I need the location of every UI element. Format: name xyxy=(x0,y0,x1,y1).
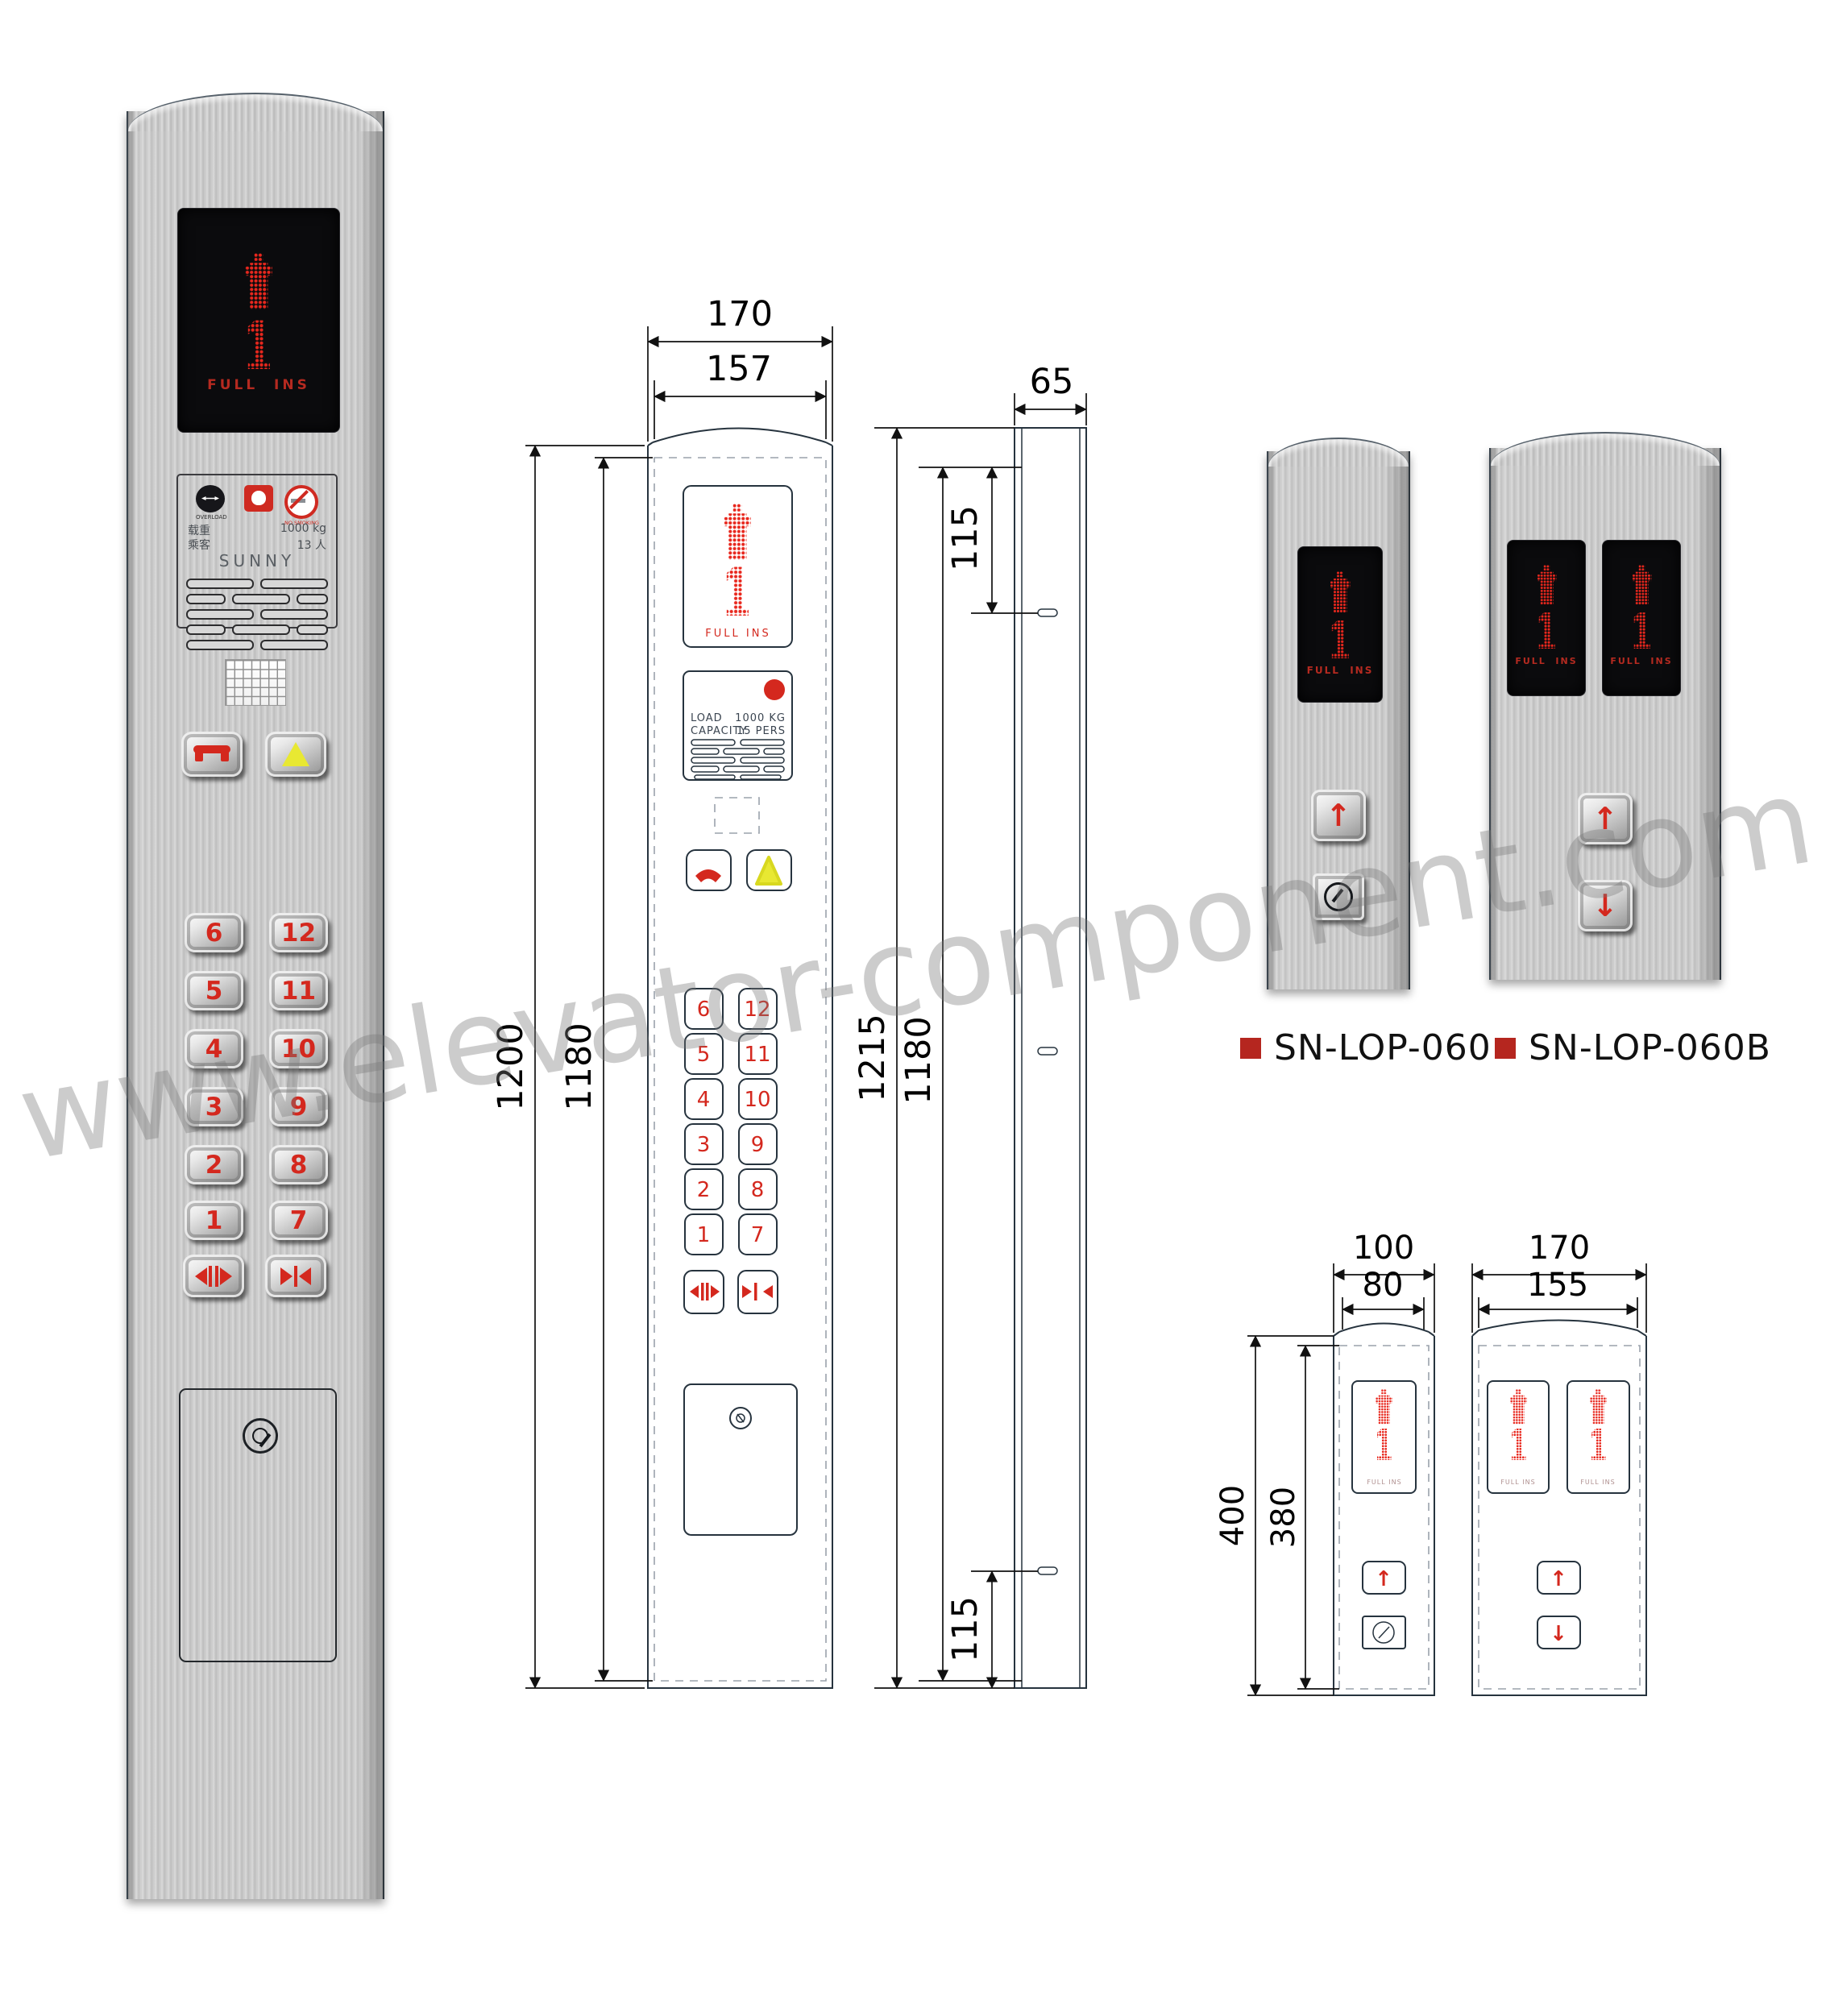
lop-display-status: FULL INS xyxy=(1500,1479,1535,1486)
front-view: FULL INS LOAD 1000 KG CAPACITY 15 PERS xyxy=(648,429,832,1689)
fv-floor-6: 6 xyxy=(697,998,711,1022)
load-row: 载重 1000 kg xyxy=(188,522,326,538)
lop-display-status: FULL INS xyxy=(1580,1479,1615,1486)
lop-curved-top xyxy=(1268,438,1409,467)
alarm-button xyxy=(265,732,326,777)
front-view-service-door xyxy=(684,1384,797,1535)
dim-side-height-inner: 1180 xyxy=(898,1016,939,1104)
lop-display-right: FULL INS xyxy=(1602,540,1681,696)
dim-wide-width-inner: 155 xyxy=(1527,1267,1588,1304)
product-caption-060b: SN-LOP-060B xyxy=(1495,1027,1771,1068)
display-status-text: FULL INS xyxy=(1307,665,1374,676)
floor-button-label: 3 xyxy=(205,1093,223,1122)
lop-dimension-lines: 100 80 170 155 400 380 xyxy=(1214,1230,1646,1695)
led-person-up-icon xyxy=(1329,571,1351,613)
dim-lop-height-outer: 400 xyxy=(1214,1485,1251,1546)
floor-button-label: 5 xyxy=(205,977,223,1006)
display-status-text: FULL INS xyxy=(1610,656,1672,666)
phone-icon xyxy=(193,745,230,763)
model-name: SN-LOP-060 xyxy=(1274,1027,1492,1068)
floor-button-label: 12 xyxy=(281,919,316,948)
cop-dimension-drawing: FULL INS LOAD 1000 KG CAPACITY 15 PERS xyxy=(483,242,1128,1732)
lop-display-status: FULL INS xyxy=(1367,1479,1401,1486)
plate-speaker-slots xyxy=(691,740,784,779)
lop-panel-photo-060: FULL INS ↑ xyxy=(1267,451,1410,989)
fv-floor-7: 7 xyxy=(751,1223,765,1247)
floor-button-label: 7 xyxy=(290,1206,308,1235)
led-floor-digit xyxy=(1330,620,1351,658)
dim-depth: 65 xyxy=(1030,362,1074,402)
floor-button-4: 4 xyxy=(185,1029,243,1068)
dim-width-outer: 170 xyxy=(707,294,773,334)
lop-display-left: FULL INS xyxy=(1507,540,1586,696)
red-square-bullet xyxy=(1240,1038,1261,1059)
passenger-row: 乘客 13 人 xyxy=(188,537,326,553)
lop-key-switch xyxy=(1363,1616,1405,1649)
cop-floor-display: FULL INS xyxy=(177,208,340,433)
floor-button-label: 9 xyxy=(290,1093,308,1122)
floor-button-label: 8 xyxy=(290,1151,308,1180)
passenger-name: 乘客 xyxy=(188,537,210,553)
front-view-door-buttons xyxy=(684,1271,778,1313)
floor-button-10: 10 xyxy=(269,1029,328,1068)
intercom-grille xyxy=(225,659,286,706)
fv-floor-3: 3 xyxy=(697,1133,711,1157)
intercom-phone-button xyxy=(181,732,243,777)
floor-button-label: 10 xyxy=(281,1035,316,1064)
key-switch-icon xyxy=(1324,882,1353,911)
floor-button-11: 11 xyxy=(269,971,328,1010)
lop-curved-top xyxy=(1491,432,1720,466)
alarm-triangle-icon xyxy=(282,742,309,766)
fv-floor-12: 12 xyxy=(744,998,770,1022)
led-person-up-icon xyxy=(1631,565,1653,605)
hall-up-button: ↑ xyxy=(1311,790,1366,841)
lop-drawing-wide: FULL INS FULL INS ↑ ↓ xyxy=(1472,1321,1646,1696)
dim-height-outer: 1200 xyxy=(491,1023,531,1110)
fv-floor-9: 9 xyxy=(751,1133,765,1157)
key-switch xyxy=(1313,873,1364,920)
floor-button-label: 11 xyxy=(281,977,316,1006)
up-arrow-icon: ↑ xyxy=(1326,798,1351,833)
display-status-text: FULL INS xyxy=(1515,656,1577,666)
floor-button-label: 1 xyxy=(205,1206,223,1235)
led-floor-digit xyxy=(245,319,272,369)
lop-drawing-display: FULL INS xyxy=(1352,1381,1416,1493)
lop-drawing-display-right: FULL INS xyxy=(1567,1381,1629,1493)
mount-slot-bottom xyxy=(1038,1567,1057,1574)
hall-down-button: ↓ xyxy=(1578,880,1633,931)
cop-info-label: OVERLOAD NO SMOKING 载重 1000 kg 乘客 13 人 S… xyxy=(176,474,338,628)
front-view-display: FULL INS xyxy=(683,486,792,647)
led-person-up-icon xyxy=(243,253,274,309)
lop-drawing-display-left: FULL INS xyxy=(1488,1381,1549,1493)
keyhole-icon xyxy=(252,1428,268,1444)
front-view-cutout xyxy=(715,798,759,833)
floor-button-label: 6 xyxy=(205,919,223,948)
front-display-status: FULL INS xyxy=(705,628,770,640)
brand-text: SUNNY xyxy=(178,551,336,570)
service-lock xyxy=(243,1418,278,1454)
floor-button-7: 7 xyxy=(269,1201,328,1240)
overload-caption: OVERLOAD xyxy=(196,514,227,521)
fv-floor-4: 4 xyxy=(697,1088,711,1112)
door-close-button xyxy=(265,1255,326,1297)
plate-load-label: LOAD xyxy=(691,712,723,724)
mount-slot-top xyxy=(1038,609,1057,616)
up-arrow-icon: ↑ xyxy=(1375,1567,1392,1591)
front-view-phone-button xyxy=(687,850,731,890)
speaker-grille xyxy=(186,574,328,650)
lop-display: FULL INS xyxy=(1297,546,1383,703)
lop-panel-photo-060b: FULL INS FULL INS ↑ ↓ xyxy=(1489,448,1721,980)
fv-floor-8: 8 xyxy=(751,1178,765,1202)
floor-button-6: 6 xyxy=(185,913,243,952)
cop-panel-curved-top xyxy=(128,93,383,131)
cop-panel-photo: FULL INS OVERLOAD NO SMOKING 载重 1000 kg … xyxy=(127,111,384,1899)
led-floor-digit xyxy=(1632,612,1652,649)
door-close-icon xyxy=(280,1266,311,1287)
dim-lop-height-inner: 380 xyxy=(1265,1487,1302,1548)
down-arrow-icon: ↓ xyxy=(1592,888,1618,923)
floor-button-12: 12 xyxy=(269,913,328,952)
mount-slot-middle xyxy=(1038,1047,1057,1055)
load-value: 1000 kg xyxy=(280,522,326,538)
front-view-alarm-button xyxy=(747,850,791,890)
plate-load-value: 1000 KG xyxy=(735,712,786,724)
product-caption-060: SN-LOP-060 xyxy=(1240,1027,1492,1068)
dimension-lines: 170 157 1200 1180 65 1215 xyxy=(491,294,1086,1688)
plate-capacity-value: 15 PERS xyxy=(737,725,786,737)
fv-floor-5: 5 xyxy=(697,1043,711,1067)
fv-floor-11: 11 xyxy=(744,1043,770,1067)
down-arrow-icon: ↓ xyxy=(1550,1622,1567,1646)
front-view-floor-buttons: 6 12 5 11 4 10 3 9 2 8 1 7 xyxy=(685,989,777,1255)
floor-button-label: 4 xyxy=(205,1035,223,1064)
fv-floor-10: 10 xyxy=(744,1088,770,1112)
floor-button-9: 9 xyxy=(269,1087,328,1126)
lop-drawing-narrow: FULL INS ↑ xyxy=(1334,1324,1434,1696)
dim-hole-offset-top: 115 xyxy=(945,505,986,571)
up-arrow-icon: ↑ xyxy=(1550,1567,1567,1591)
overload-icon: OVERLOAD xyxy=(196,485,227,521)
dim-narrow-width-outer: 100 xyxy=(1353,1230,1414,1267)
led-person-up-icon xyxy=(1536,565,1558,605)
product-sheet: www.elevator-component.com FULL INS OVER… xyxy=(0,0,1830,2016)
dim-width-inner: 157 xyxy=(706,349,772,389)
floor-button-label: 2 xyxy=(205,1151,223,1180)
dim-narrow-width-inner: 80 xyxy=(1363,1267,1404,1304)
dim-side-height-outer: 1215 xyxy=(853,1014,893,1101)
dim-wide-width-outer: 170 xyxy=(1529,1230,1590,1267)
door-open-button xyxy=(183,1255,244,1297)
fv-floor-2: 2 xyxy=(697,1178,711,1202)
alarm-bell-icon xyxy=(244,485,273,512)
led-floor-digit xyxy=(1537,612,1557,649)
service-door xyxy=(179,1388,337,1662)
up-arrow-icon: ↑ xyxy=(1592,801,1618,836)
side-view xyxy=(1015,428,1086,1688)
floor-button-2: 2 xyxy=(185,1145,243,1184)
plate-seal-icon xyxy=(764,679,785,700)
hall-up-button: ↑ xyxy=(1578,793,1633,844)
model-name: SN-LOP-060B xyxy=(1529,1027,1771,1068)
load-name: 载重 xyxy=(188,522,210,538)
display-status-text: FULL INS xyxy=(207,377,310,393)
floor-button-8: 8 xyxy=(269,1145,328,1184)
front-view-capacity-plate: LOAD 1000 KG CAPACITY 15 PERS xyxy=(683,671,792,780)
floor-button-3: 3 xyxy=(185,1087,243,1126)
floor-button-5: 5 xyxy=(185,971,243,1010)
lop-dimension-drawing: FULL INS ↑ FULL INS xyxy=(1193,1225,1692,1724)
dim-height-inner: 1180 xyxy=(559,1023,600,1110)
red-square-bullet xyxy=(1495,1038,1516,1059)
no-smoking-icon: NO SMOKING xyxy=(284,485,319,526)
fv-floor-1: 1 xyxy=(697,1223,711,1247)
floor-button-1: 1 xyxy=(185,1201,243,1240)
passenger-value: 13 人 xyxy=(297,537,326,553)
door-open-icon xyxy=(195,1266,232,1287)
dim-hole-offset-bottom: 115 xyxy=(945,1596,986,1662)
